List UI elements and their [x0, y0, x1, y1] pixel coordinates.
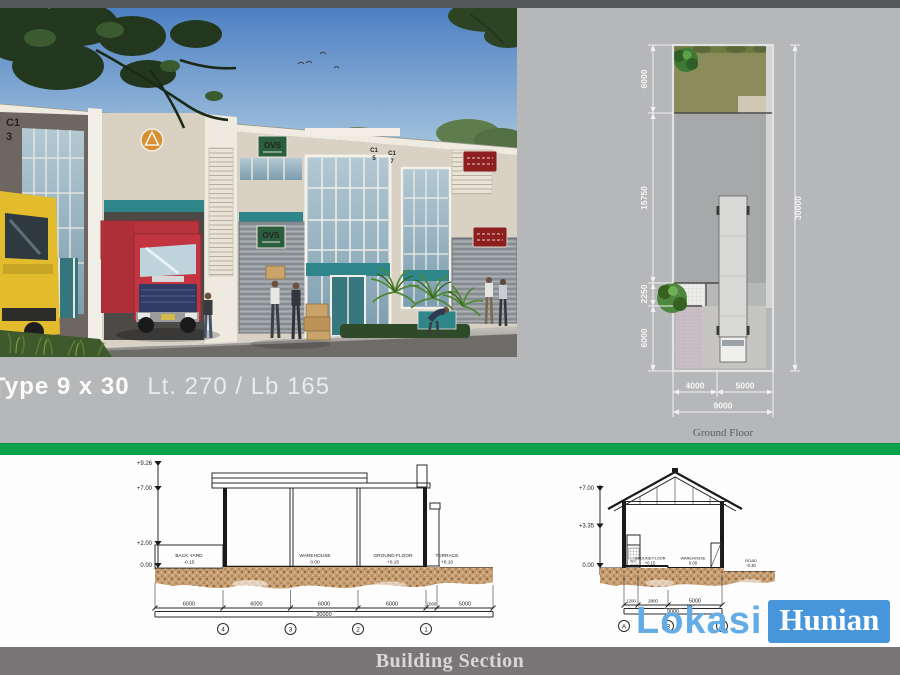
ovs-sign: OVS — [257, 226, 285, 248]
svg-text:+0.15: +0.15 — [387, 560, 399, 566]
plan-truck — [717, 196, 750, 362]
svg-text:30000: 30000 — [316, 612, 331, 618]
content-canvas: C1 3 — [0, 8, 900, 443]
level-label: +7.00 — [579, 486, 595, 492]
svg-text:0.00: 0.00 — [310, 560, 320, 566]
footer-bar: Building Section — [0, 647, 900, 675]
svg-text:1: 1 — [424, 627, 428, 634]
svg-text:6000: 6000 — [318, 602, 330, 608]
dim-label: 4000 — [686, 381, 705, 391]
svg-text:3: 3 — [289, 627, 293, 634]
dim-label: 2250 — [640, 284, 649, 303]
svg-text:TERRACE: TERRACE — [436, 553, 459, 559]
plan-body — [657, 45, 773, 371]
footer-title: Building Section — [376, 650, 525, 672]
svg-text:2: 2 — [356, 627, 360, 634]
elevation-scale: +7.00 +3.35 0.00 — [579, 485, 604, 575]
paved-terrace — [676, 306, 702, 368]
level-label: +3.35 — [579, 524, 595, 530]
brochure-page: C1 3 — [0, 0, 900, 675]
ground-floor-plan: 6000 15750 2250 6000 30000 4000 5000 900… — [640, 36, 810, 446]
ovs-sign: OVS — [258, 136, 287, 157]
level-label: 0.00 — [582, 563, 594, 569]
level-label: +7.00 — [137, 486, 153, 492]
hero-rendering: C1 3 — [0, 8, 517, 357]
unit-number-label: C1 — [370, 148, 378, 154]
svg-text:BACK YARD: BACK YARD — [175, 553, 203, 559]
yellow-truck — [0, 191, 60, 342]
svg-text:-0.30: -0.30 — [746, 563, 756, 568]
svg-text:-0.15: -0.15 — [184, 560, 195, 566]
dim-label: 6000 — [640, 328, 649, 347]
type-label: Type 9 x 30 — [0, 373, 130, 400]
area-label: Lt. 270 / Lb 165 — [147, 373, 330, 400]
ground-hatch — [155, 567, 493, 589]
pilaster — [88, 108, 102, 349]
dim-label: 9000 — [714, 401, 733, 411]
svg-text:+0.10: +0.10 — [629, 564, 638, 568]
svg-text:4: 4 — [221, 627, 225, 634]
top-bar — [0, 0, 900, 8]
svg-text:6000: 6000 — [250, 602, 262, 608]
longitudinal-section: +9.26 +7.00 +2.00 0.00 B — [90, 455, 510, 645]
dim-label: 6000 — [640, 69, 649, 88]
unit-number-label: C1 — [388, 151, 396, 157]
svg-text:WAREHOUSE: WAREHOUSE — [299, 553, 330, 559]
dimension-row: 6000 6000 6000 6000 1000 5000 30000 — [153, 583, 496, 618]
svg-text:OVS: OVS — [264, 141, 282, 150]
plan-title: Ground Floor — [693, 427, 754, 439]
svg-text:+0.15: +0.15 — [645, 561, 656, 566]
plan-tree — [657, 283, 687, 313]
unit-number-label: 3 — [6, 131, 12, 143]
grid-bubbles: 4 3 2 1 — [218, 624, 432, 635]
svg-text:A: A — [622, 624, 627, 631]
unit-number-label: C1 — [6, 117, 20, 129]
svg-text:GROUND FLOOR: GROUND FLOOR — [373, 553, 413, 559]
svg-text:6000: 6000 — [386, 602, 398, 608]
svg-text:5000: 5000 — [459, 602, 471, 608]
svg-text:OVS: OVS — [263, 231, 281, 240]
dim-label: 15750 — [640, 186, 649, 210]
level-label: 0.00 — [140, 563, 152, 569]
elevation-scale: +9.26 +7.00 +2.00 0.00 — [137, 461, 162, 573]
dim-label: 5000 — [736, 381, 755, 391]
level-label: +9.26 — [137, 461, 153, 467]
building-outline — [155, 465, 493, 569]
room-labels: BACK YARD -0.15 WAREHOUSE 0.00 GROUND FL… — [175, 553, 458, 566]
ground-hatch — [600, 568, 775, 587]
brand-name-second: Hunian — [768, 600, 890, 643]
red-sign — [463, 151, 497, 172]
dim-label: 30000 — [793, 196, 803, 220]
svg-text:+0.10: +0.10 — [441, 560, 453, 566]
svg-text:1000: 1000 — [427, 602, 437, 607]
hero-caption: Type 9 x 30 Lt. 270 / Lb 165 — [0, 373, 330, 401]
svg-text:6000: 6000 — [183, 602, 195, 608]
brand-name-first: Lokasi — [636, 600, 762, 643]
brand-watermark: Lokasi Hunian — [636, 600, 890, 643]
box-stack — [304, 304, 330, 340]
svg-text:1200: 1200 — [626, 599, 636, 604]
svg-text:0.00: 0.00 — [689, 561, 698, 566]
red-sign — [473, 227, 507, 247]
level-label: +2.00 — [137, 541, 153, 547]
